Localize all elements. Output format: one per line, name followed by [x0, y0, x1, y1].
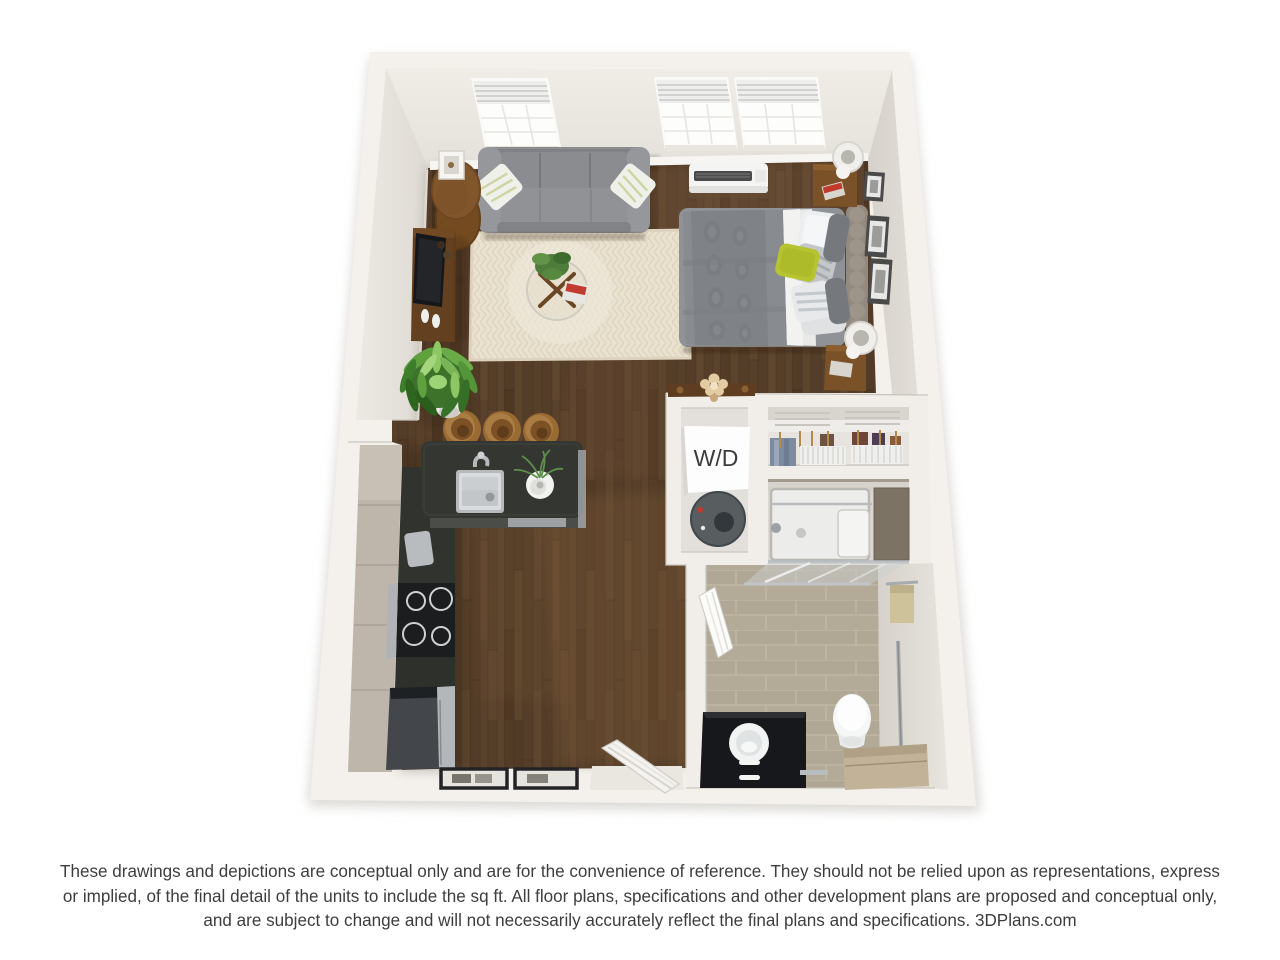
svg-text:W/D: W/D	[694, 445, 739, 471]
